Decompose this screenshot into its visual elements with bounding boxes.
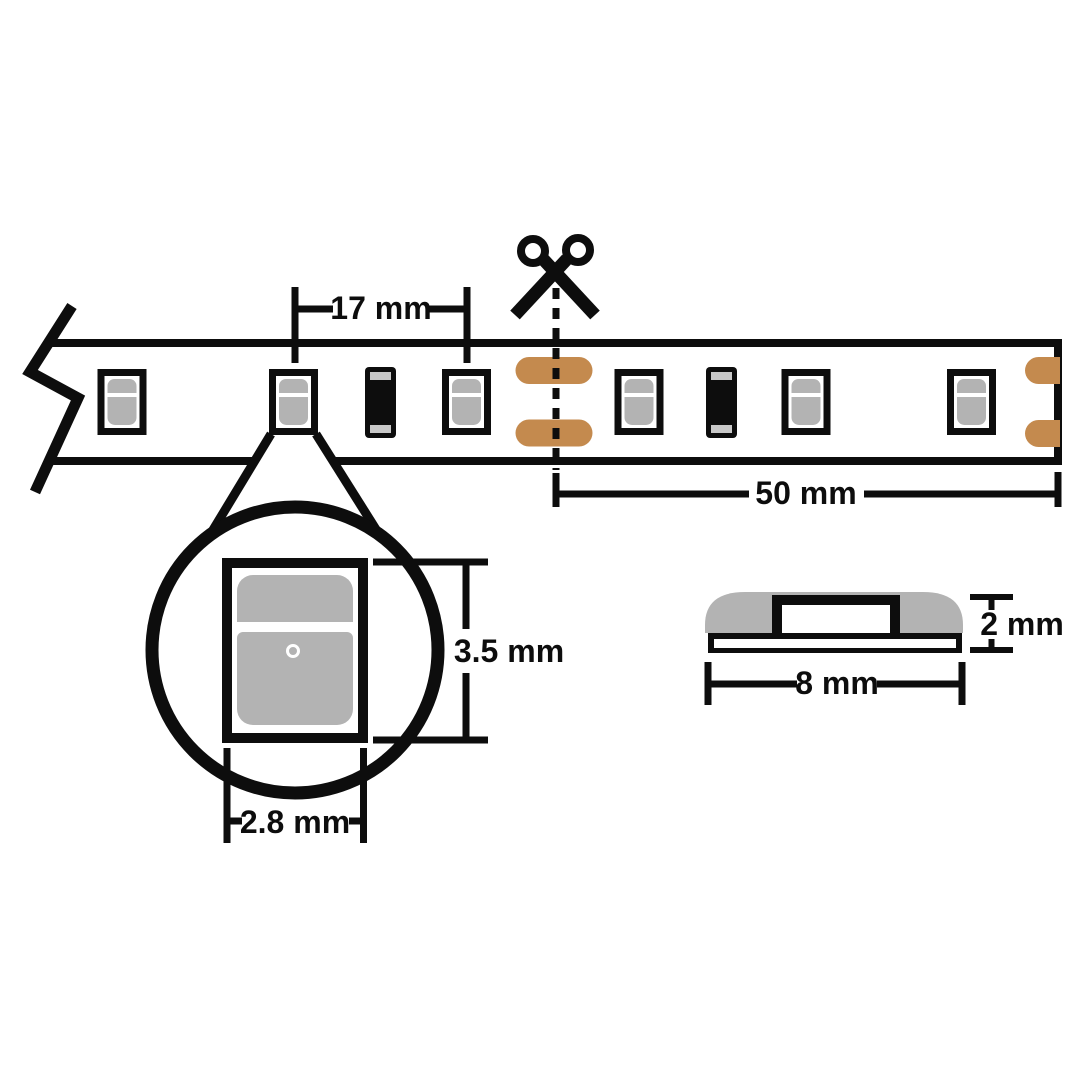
end-solder-pad [1025,420,1060,447]
profile-width-dimension: 8 mm [708,662,962,705]
led-height-label: 3.5 mm [454,633,564,669]
magnified-led-chip-top [237,575,353,622]
led-footprint [446,373,488,432]
profile-width-label: 8 mm [795,665,879,701]
led-strip-dimension-diagram: 17 mm 50 mm 3. [0,0,1080,1080]
led-footprint-magnified-source [273,373,315,432]
cut-length-label: 50 mm [755,475,856,511]
scissors-blade [515,259,567,315]
led-strip-top-view [30,306,1062,492]
led-width-label: 2.8 mm [240,804,350,840]
led-pitch-dimension: 17 mm [295,287,467,363]
end-solder-pad [1025,357,1060,384]
resistor [365,367,396,438]
led-pitch-label: 17 mm [330,290,431,326]
led-footprint [785,373,827,432]
magnified-led [227,563,363,738]
scissors-handle [566,238,590,262]
cut-length-dimension: 50 mm [556,472,1058,511]
resistor [706,367,737,438]
scissors-icon [515,238,595,315]
scissors-handle [521,239,545,263]
strip-cross-section: 2 mm 8 mm [705,592,1064,705]
led-profile-inner [782,605,890,633]
profile-height-label: 2 mm [980,606,1064,642]
magnifier-callout: 3.5 mm 2.8 mm [152,434,564,843]
profile-height-dimension: 2 mm [970,597,1064,650]
pcb-base-inner [714,639,956,648]
led-footprint [951,373,993,432]
led-footprint [618,373,660,432]
led-footprint [101,373,143,432]
